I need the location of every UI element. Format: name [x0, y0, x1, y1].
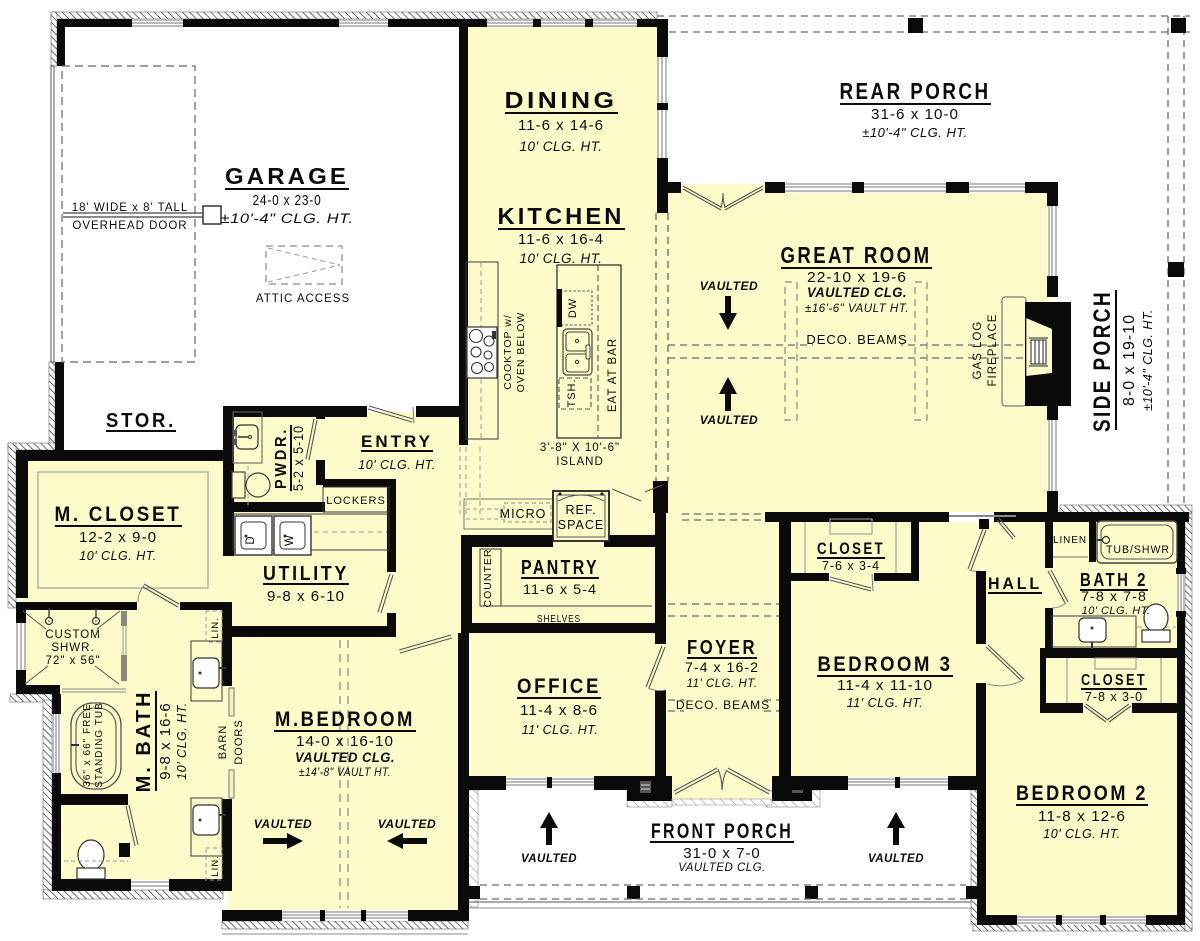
svg-text:REAR PORCH: REAR PORCH — [840, 78, 991, 104]
svg-text:COOKTOP w/: COOKTOP w/ — [502, 314, 514, 390]
svg-text:GARAGE: GARAGE — [225, 163, 349, 189]
svg-text:SPACE: SPACE — [558, 518, 604, 532]
svg-text:VAULTED: VAULTED — [521, 853, 577, 865]
svg-text:±14'-8" VAULT HT.: ±14'-8" VAULT HT. — [299, 765, 391, 779]
svg-text:11-6 x 14-6: 11-6 x 14-6 — [518, 117, 604, 134]
svg-text:VAULTED: VAULTED — [700, 413, 758, 427]
svg-text:OFFICE: OFFICE — [517, 675, 601, 698]
svg-text:GREAT ROOM: GREAT ROOM — [781, 242, 932, 268]
svg-text:VAULTED CLG.: VAULTED CLG. — [295, 750, 395, 765]
svg-text:W: W — [284, 534, 296, 546]
svg-text:SIDE PORCH: SIDE PORCH — [1089, 290, 1116, 432]
svg-text:±10'-4" CLG. HT.: ±10'-4" CLG. HT. — [862, 125, 968, 140]
svg-text:UTILITY: UTILITY — [263, 563, 349, 585]
svg-text:DECO. BEAMS: DECO. BEAMS — [676, 698, 770, 712]
svg-text:10' CLG. HT.: 10' CLG. HT. — [1082, 605, 1151, 617]
svg-text:24-0 x 23-0: 24-0 x 23-0 — [253, 192, 322, 209]
svg-text:VAULTED: VAULTED — [868, 853, 924, 865]
svg-text:VAULTED CLG.: VAULTED CLG. — [678, 862, 766, 874]
svg-text:12-2 x 9-0: 12-2 x 9-0 — [79, 529, 157, 546]
svg-text:HALL: HALL — [988, 574, 1042, 593]
svg-text:31-0 x 7-0: 31-0 x 7-0 — [683, 845, 761, 862]
svg-text:11' CLG. HT.: 11' CLG. HT. — [847, 696, 923, 710]
svg-text:ENTRY: ENTRY — [361, 432, 433, 451]
svg-text:7-8 x 3-0: 7-8 x 3-0 — [1085, 689, 1143, 704]
svg-text:VAULTED CLG.: VAULTED CLG. — [807, 285, 907, 300]
svg-text:STANDING TUB: STANDING TUB — [94, 702, 105, 788]
svg-text:COUNTER: COUNTER — [482, 549, 494, 608]
svg-text:9-8 x 16-6: 9-8 x 16-6 — [157, 702, 174, 780]
svg-text:KITCHEN: KITCHEN — [498, 203, 625, 229]
svg-text:9-8 x 6-10: 9-8 x 6-10 — [267, 588, 345, 605]
svg-text:14-0 x 16-10: 14-0 x 16-10 — [296, 733, 394, 750]
svg-text:DINING: DINING — [505, 87, 618, 113]
svg-text:LINEN: LINEN — [1053, 534, 1087, 546]
svg-text:CLOSET: CLOSET — [1081, 672, 1147, 689]
svg-text:PANTRY: PANTRY — [521, 557, 599, 579]
svg-text:10' CLG. HT.: 10' CLG. HT. — [175, 702, 189, 779]
svg-text:FIREPLACE: FIREPLACE — [987, 314, 999, 387]
svg-text:CLOSET: CLOSET — [817, 539, 885, 558]
svg-text:DOORS: DOORS — [233, 719, 245, 764]
svg-text:31-6 x 10-0: 31-6 x 10-0 — [871, 106, 959, 123]
svg-text:8-0 x 19-10: 8-0 x 19-10 — [1121, 314, 1138, 406]
svg-text:7-8 x 7-8: 7-8 x 7-8 — [1081, 589, 1147, 604]
svg-text:D: D — [245, 535, 257, 544]
svg-text:BEDROOM 2: BEDROOM 2 — [1016, 781, 1148, 805]
svg-text:CUSTOM: CUSTOM — [45, 629, 101, 641]
svg-text:10' CLG. HT.: 10' CLG. HT. — [519, 139, 602, 154]
svg-text:BARN: BARN — [217, 725, 229, 760]
svg-text:M. CLOSET: M. CLOSET — [55, 503, 182, 526]
svg-text:OVEN BELOW: OVEN BELOW — [515, 312, 527, 393]
svg-text:11' CLG. HT.: 11' CLG. HT. — [522, 723, 598, 737]
svg-text:EAT AT BAR: EAT AT BAR — [607, 338, 619, 412]
svg-text:10' CLG. HT.: 10' CLG. HT. — [79, 549, 156, 563]
svg-text:22-10 x 19-6: 22-10 x 19-6 — [807, 269, 907, 286]
svg-text:SHELVES: SHELVES — [537, 614, 581, 625]
svg-text:11-6 x 5-4: 11-6 x 5-4 — [523, 581, 597, 597]
svg-text:DW: DW — [567, 298, 579, 318]
svg-text:MICRO: MICRO — [500, 507, 547, 521]
svg-text:±16'-6" VAULT HT.: ±16'-6" VAULT HT. — [805, 301, 909, 315]
svg-text:11-4 x 8-6: 11-4 x 8-6 — [520, 702, 598, 719]
svg-text:FRONT PORCH: FRONT PORCH — [651, 820, 793, 843]
svg-text:VAULTED: VAULTED — [254, 817, 312, 831]
svg-text:BEDROOM 3: BEDROOM 3 — [818, 652, 953, 676]
svg-text:GAS LOG: GAS LOG — [972, 321, 984, 380]
svg-text:ISLAND: ISLAND — [556, 456, 604, 468]
svg-text:10' CLG. HT.: 10' CLG. HT. — [1043, 827, 1120, 841]
svg-text:10' CLG. HT.: 10' CLG. HT. — [519, 251, 602, 266]
svg-text:±10'-4" CLG. HT.: ±10'-4" CLG. HT. — [1141, 309, 1155, 411]
svg-text:VAULTED: VAULTED — [700, 279, 758, 293]
svg-text:ATTIC ACCESS: ATTIC ACCESS — [256, 293, 350, 305]
svg-text:11-6 x 16-4: 11-6 x 16-4 — [518, 231, 604, 248]
svg-text:LIN.: LIN. — [210, 617, 221, 638]
svg-text:REF.: REF. — [565, 503, 596, 517]
svg-text:OVERHEAD DOOR: OVERHEAD DOOR — [72, 220, 187, 232]
svg-text:TSH.: TSH. — [566, 378, 578, 407]
svg-text:18' WIDE x 8' TALL: 18' WIDE x 8' TALL — [72, 202, 189, 214]
svg-text:PWDR.: PWDR. — [273, 427, 290, 489]
svg-text:7-4 x 16-2: 7-4 x 16-2 — [685, 659, 759, 675]
svg-text:72" x 56": 72" x 56" — [46, 655, 101, 667]
svg-text:5-2 x 5-10: 5-2 x 5-10 — [291, 425, 306, 491]
svg-text:DECO. BEAMS: DECO. BEAMS — [806, 332, 907, 347]
svg-text:STOR.: STOR. — [106, 410, 176, 432]
svg-text:±10'-4" CLG. HT.: ±10'-4" CLG. HT. — [221, 211, 354, 226]
svg-text:11-8 x 12-6: 11-8 x 12-6 — [1038, 808, 1126, 825]
svg-text:11-4 x 11-10: 11-4 x 11-10 — [837, 677, 933, 694]
svg-text:7-6 x 3-4: 7-6 x 3-4 — [822, 558, 880, 573]
svg-text:VAULTED: VAULTED — [378, 817, 436, 831]
svg-text:SHWR.: SHWR. — [51, 642, 94, 654]
svg-text:M. BATH: M. BATH — [133, 690, 155, 793]
svg-text:11' CLG. HT.: 11' CLG. HT. — [687, 678, 758, 690]
svg-text:10' CLG. HT.: 10' CLG. HT. — [358, 458, 435, 472]
svg-text:LIN.: LIN. — [210, 855, 221, 876]
svg-text:LOCKERS: LOCKERS — [326, 495, 386, 507]
svg-text:M.BEDROOM: M.BEDROOM — [275, 707, 415, 731]
svg-text:BATH 2: BATH 2 — [1080, 570, 1148, 590]
svg-text:3'-8" X 10'-6": 3'-8" X 10'-6" — [540, 442, 620, 454]
svg-text:FOYER: FOYER — [687, 637, 757, 659]
svg-text:TUB/SHWR: TUB/SHWR — [1106, 544, 1170, 556]
svg-text:36" x 66" FREE: 36" x 66" FREE — [82, 703, 93, 786]
